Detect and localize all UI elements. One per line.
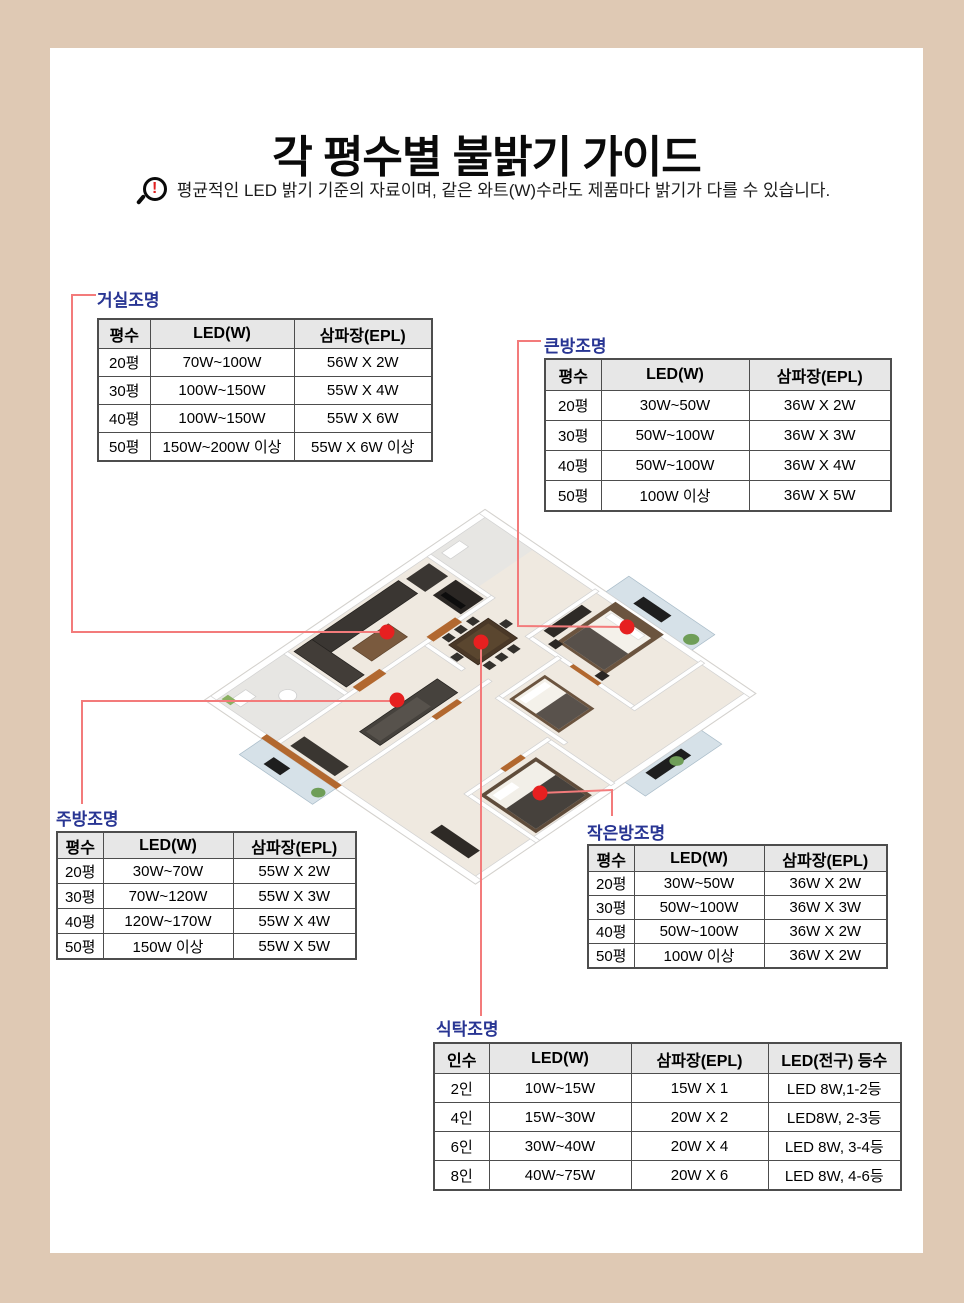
table-row: 40평50W~100W36W X 4W: [545, 451, 891, 481]
table-header-row: 평수LED(W)삼파장(EPL): [545, 359, 891, 391]
table-cell: 20W X 2: [631, 1103, 768, 1132]
column-header: 삼파장(EPL): [233, 832, 356, 859]
column-header: 삼파장(EPL): [631, 1043, 768, 1074]
table-row: 6인30W~40W20W X 4LED 8W, 3-4등: [434, 1132, 901, 1161]
table-cell: 55W X 4W: [233, 909, 356, 934]
table-row: 20평70W~100W56W X 2W: [98, 349, 432, 377]
table-cell: 36W X 2W: [749, 391, 891, 421]
column-header: 평수: [98, 319, 150, 349]
table-header-row: 평수LED(W)삼파장(EPL): [588, 845, 887, 872]
section-label-dining: 식탁조명: [436, 1015, 499, 1040]
table-cell: LED 8W, 4-6등: [768, 1161, 901, 1191]
table-cell: 20평: [545, 391, 601, 421]
section-label-kitchen: 주방조명: [56, 805, 119, 830]
table-small-room: 평수LED(W)삼파장(EPL)20평30W~50W36W X 2W30평50W…: [587, 844, 888, 969]
table-cell: 40평: [98, 405, 150, 433]
table-cell: 55W X 6W 이상: [294, 433, 432, 462]
table-cell: 100W~150W: [150, 405, 294, 433]
table-cell: 40평: [57, 909, 103, 934]
magnifier-alert-icon: !: [143, 177, 167, 201]
column-header: LED(W): [103, 832, 233, 859]
column-header: 삼파장(EPL): [294, 319, 432, 349]
table-row: 20평30W~50W36W X 2W: [588, 872, 887, 896]
table-row: 30평50W~100W36W X 3W: [545, 421, 891, 451]
table-row: 40평100W~150W55W X 6W: [98, 405, 432, 433]
column-header: LED(W): [634, 845, 764, 872]
table-cell: 55W X 2W: [233, 859, 356, 884]
table-cell: 30평: [98, 377, 150, 405]
table-row: 50평150W 이상55W X 5W: [57, 934, 356, 960]
table-cell: 36W X 2W: [764, 872, 887, 896]
table-cell: 100W 이상: [601, 481, 749, 512]
table-cell: 36W X 4W: [749, 451, 891, 481]
table-cell: 15W X 1: [631, 1074, 768, 1103]
table-cell: 36W X 3W: [764, 896, 887, 920]
table-cell: 20평: [57, 859, 103, 884]
table-cell: 40평: [545, 451, 601, 481]
table-cell: 8인: [434, 1161, 489, 1191]
table-row: 8인40W~75W20W X 6LED 8W, 4-6등: [434, 1161, 901, 1191]
table-cell: 50W~100W: [601, 421, 749, 451]
disclaimer-text: 평균적인 LED 밝기 기준의 자료이며, 같은 와트(W)수라도 제품마다 밝…: [177, 176, 831, 201]
table-cell: LED8W, 2-3등: [768, 1103, 901, 1132]
column-header: LED(W): [150, 319, 294, 349]
table-row: 20평30W~70W55W X 2W: [57, 859, 356, 884]
table-cell: 36W X 3W: [749, 421, 891, 451]
column-header: 평수: [545, 359, 601, 391]
table-cell: 36W X 2W: [764, 944, 887, 969]
table-cell: 30평: [57, 884, 103, 909]
table-cell: 50평: [545, 481, 601, 512]
table-header-row: 인수LED(W)삼파장(EPL)LED(전구) 등수: [434, 1043, 901, 1074]
table-row: 30평70W~120W55W X 3W: [57, 884, 356, 909]
table-cell: 30평: [588, 896, 634, 920]
table-cell: 56W X 2W: [294, 349, 432, 377]
table-row: 50평150W~200W 이상55W X 6W 이상: [98, 433, 432, 462]
section-label-big-room: 큰방조명: [544, 332, 607, 357]
column-header: 인수: [434, 1043, 489, 1074]
table-dining: 인수LED(W)삼파장(EPL)LED(전구) 등수2인10W~15W15W X…: [433, 1042, 902, 1191]
table-cell: 120W~170W: [103, 909, 233, 934]
table-cell: 36W X 2W: [764, 920, 887, 944]
table-cell: 55W X 4W: [294, 377, 432, 405]
column-header: 평수: [588, 845, 634, 872]
table-row: 40평120W~170W55W X 4W: [57, 909, 356, 934]
column-header: 삼파장(EPL): [764, 845, 887, 872]
table-big-room: 평수LED(W)삼파장(EPL)20평30W~50W36W X 2W30평50W…: [544, 358, 892, 512]
infographic-page: { "page": { "title": "각 평수별 불밝기 가이드", "d…: [0, 0, 964, 1303]
table-cell: 150W 이상: [103, 934, 233, 960]
table-cell: 20평: [98, 349, 150, 377]
table-cell: 30W~40W: [489, 1132, 631, 1161]
table-cell: 4인: [434, 1103, 489, 1132]
table-row: 4인15W~30W20W X 2LED8W, 2-3등: [434, 1103, 901, 1132]
table-cell: 100W~150W: [150, 377, 294, 405]
table-header-row: 평수LED(W)삼파장(EPL): [98, 319, 432, 349]
column-header: 삼파장(EPL): [749, 359, 891, 391]
table-cell: 30W~70W: [103, 859, 233, 884]
table-cell: 20W X 4: [631, 1132, 768, 1161]
table-row: 20평30W~50W36W X 2W: [545, 391, 891, 421]
column-header: LED(W): [601, 359, 749, 391]
table-cell: 100W 이상: [634, 944, 764, 969]
table-cell: 55W X 3W: [233, 884, 356, 909]
table-cell: LED 8W, 3-4등: [768, 1132, 901, 1161]
table-cell: 30평: [545, 421, 601, 451]
table-cell: 55W X 6W: [294, 405, 432, 433]
table-cell: 15W~30W: [489, 1103, 631, 1132]
table-cell: 20W X 6: [631, 1161, 768, 1191]
table-header-row: 평수LED(W)삼파장(EPL): [57, 832, 356, 859]
section-label-living: 거실조명: [97, 286, 160, 311]
table-cell: 50평: [588, 944, 634, 969]
table-cell: 50W~100W: [601, 451, 749, 481]
table-row: 30평50W~100W36W X 3W: [588, 896, 887, 920]
table-row: 50평100W 이상36W X 2W: [588, 944, 887, 969]
table-cell: 70W~100W: [150, 349, 294, 377]
table-row: 50평100W 이상36W X 5W: [545, 481, 891, 512]
table-cell: 6인: [434, 1132, 489, 1161]
table-cell: 55W X 5W: [233, 934, 356, 960]
table-cell: 30W~50W: [601, 391, 749, 421]
table-cell: 20평: [588, 872, 634, 896]
table-row: 40평50W~100W36W X 2W: [588, 920, 887, 944]
table-cell: LED 8W,1-2등: [768, 1074, 901, 1103]
table-cell: 50W~100W: [634, 920, 764, 944]
table-row: 30평100W~150W55W X 4W: [98, 377, 432, 405]
column-header: LED(W): [489, 1043, 631, 1074]
table-kitchen: 평수LED(W)삼파장(EPL)20평30W~70W55W X 2W30평70W…: [56, 831, 357, 960]
table-living-room: 평수LED(W)삼파장(EPL)20평70W~100W56W X 2W30평10…: [97, 318, 433, 462]
column-header: 평수: [57, 832, 103, 859]
table-cell: 36W X 5W: [749, 481, 891, 512]
table-cell: 50W~100W: [634, 896, 764, 920]
table-cell: 50평: [98, 433, 150, 462]
table-row: 2인10W~15W15W X 1LED 8W,1-2등: [434, 1074, 901, 1103]
table-cell: 70W~120W: [103, 884, 233, 909]
table-cell: 10W~15W: [489, 1074, 631, 1103]
table-cell: 40평: [588, 920, 634, 944]
column-header: LED(전구) 등수: [768, 1043, 901, 1074]
table-cell: 30W~50W: [634, 872, 764, 896]
table-cell: 40W~75W: [489, 1161, 631, 1191]
table-cell: 2인: [434, 1074, 489, 1103]
table-cell: 50평: [57, 934, 103, 960]
table-cell: 150W~200W 이상: [150, 433, 294, 462]
disclaimer-row: ! 평균적인 LED 밝기 기준의 자료이며, 같은 와트(W)수라도 제품마다…: [50, 176, 923, 201]
section-label-small-room: 작은방조명: [587, 819, 665, 844]
